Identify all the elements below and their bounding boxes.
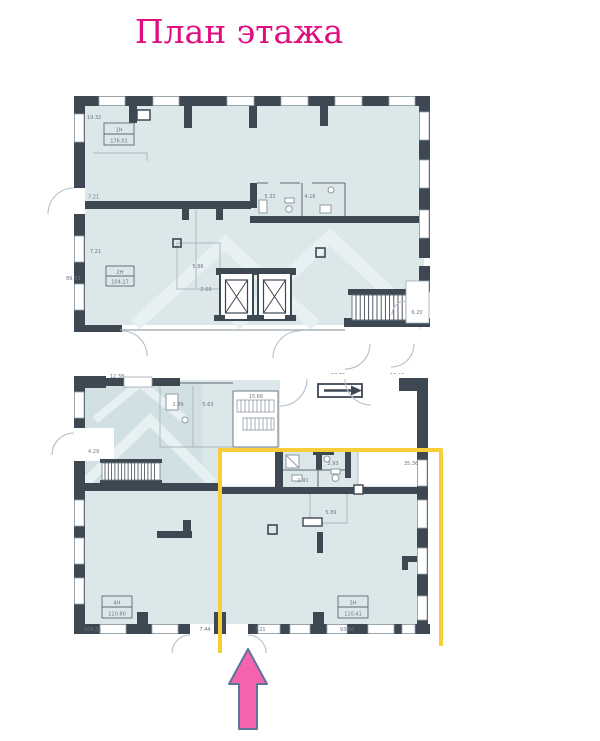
dim-label: 2.09 [200, 287, 211, 293]
unit-number: 3Н [350, 601, 357, 607]
staircase-lower [102, 463, 160, 480]
entrance-marker [318, 384, 362, 397]
dim-label: 4.29 [88, 449, 99, 455]
dim-label: 2.89 [172, 402, 183, 408]
dim-label: 5.32 [264, 194, 275, 200]
dim-label: 6.20 [411, 310, 422, 316]
dim-label: 93.68 [340, 627, 354, 633]
unit-number: 4Н [114, 601, 121, 607]
dim-label: 15.66 [249, 394, 263, 400]
up-arrow-pointer [229, 649, 267, 729]
dim-label: 2.91 [297, 478, 308, 484]
unit-number: 1Н [116, 128, 123, 134]
unit-number: 2Н [117, 270, 124, 276]
dim-label: 7.44 [199, 627, 210, 633]
unit-area: 110.80 [108, 612, 126, 618]
floor-plan: 19.32 1Н 176.01 7.21 7.21 89.83 2Н 104.2… [0, 0, 600, 741]
dim-label: 89.83 [66, 276, 80, 282]
dim-label: 4.16 [304, 194, 315, 200]
door-arc [48, 188, 74, 214]
unit-area: 110.41 [344, 612, 362, 618]
dim-label: 7.21 [90, 249, 101, 255]
dim-label: 35.36 [404, 461, 418, 467]
unit-area: 104.27 [111, 280, 129, 286]
lower-building: 2.89 5.63 15.66 4.29 2.93 2.91 35.36 5.8… [52, 374, 430, 653]
dim-label: 7.21 [254, 627, 265, 633]
floor-plan-page: План этажа [0, 0, 600, 741]
between-buildings: 12.38 58.75 13.46 [110, 331, 414, 380]
dim-label: 104.31 [84, 627, 102, 633]
dim-label: 2.93 [327, 461, 338, 467]
dim-label: 5.89 [325, 510, 336, 516]
dim-label: 19.32 [87, 115, 101, 121]
upper-building: 19.32 1Н 176.01 7.21 7.21 89.83 2Н 104.2… [48, 96, 430, 332]
unit-area: 176.01 [110, 139, 128, 145]
dim-label: 5.96 [192, 264, 203, 270]
dim-label: 7.21 [88, 195, 99, 201]
dim-label: 5.63 [202, 402, 213, 408]
